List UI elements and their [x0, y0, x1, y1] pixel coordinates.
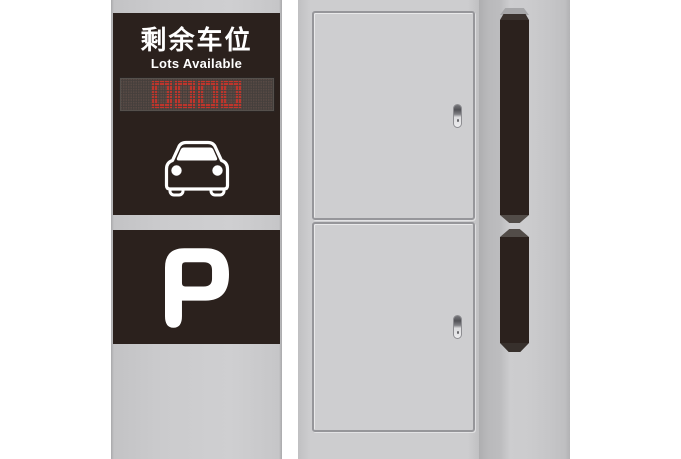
- side-view-pillar: [479, 0, 570, 459]
- side-panel-bottom: [500, 237, 529, 343]
- side-panel-top: [500, 20, 529, 215]
- cabinet-door-bottom: [312, 222, 475, 432]
- side-panel-top-bottom-bevel: [500, 215, 529, 223]
- side-panel-top-cap: [500, 8, 529, 15]
- front-view-pillar: 剩余车位 Lots Available: [111, 0, 282, 459]
- side-panel-bottom-bevel: [500, 343, 529, 352]
- door-handle-icon: [453, 315, 462, 339]
- product-image: 剩余车位 Lots Available: [0, 0, 681, 459]
- parking-symbol-panel: [113, 230, 280, 344]
- car-front-icon: [159, 138, 235, 198]
- cabinet-door-top: [312, 11, 475, 220]
- door-handle-icon: [453, 104, 462, 128]
- parking-p-icon: [165, 248, 229, 328]
- title-chinese: 剩余车位: [140, 27, 252, 53]
- front-sign-panel: 剩余车位 Lots Available: [113, 13, 280, 215]
- led-display: [119, 77, 275, 112]
- side-panel-bottom-top-bevel: [500, 229, 529, 237]
- title-english: Lots Available: [151, 57, 242, 70]
- back-view-cabinet: [298, 0, 479, 459]
